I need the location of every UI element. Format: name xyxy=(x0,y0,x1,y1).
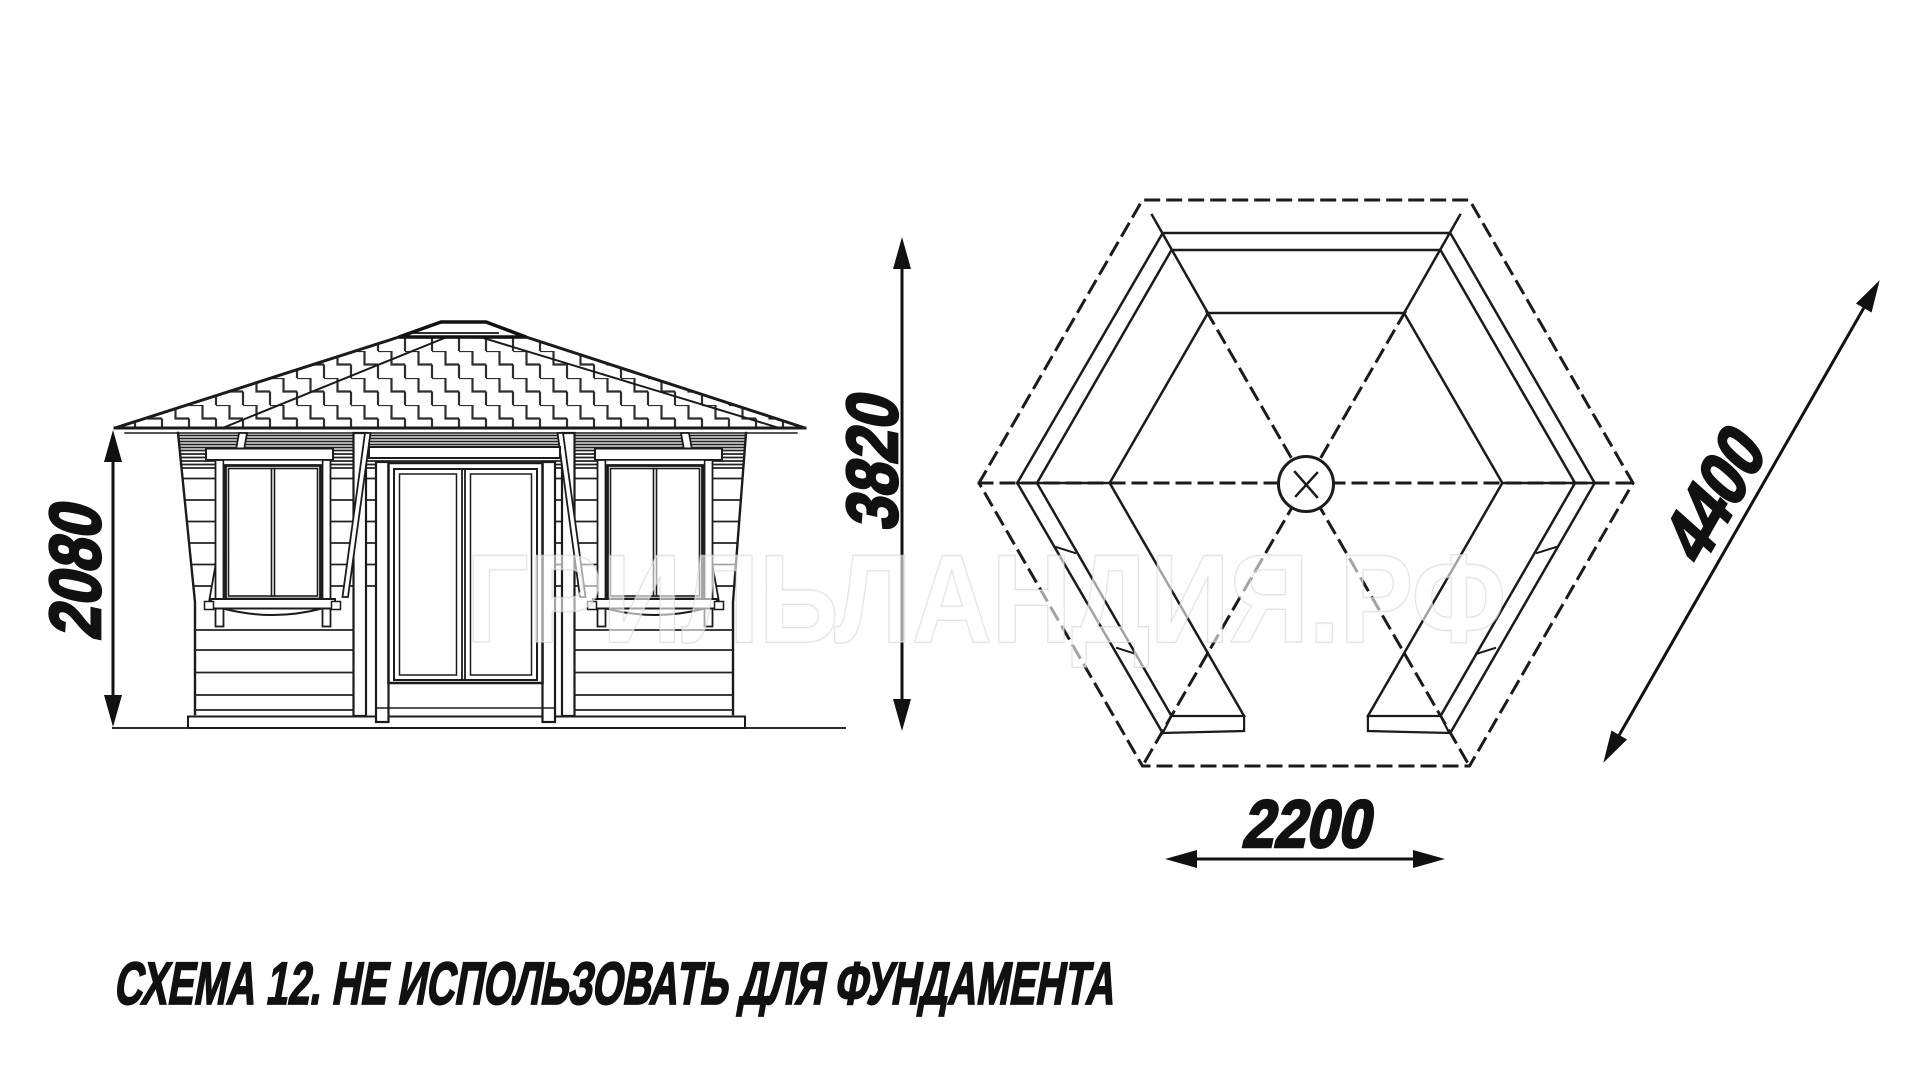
svg-text:2200: 2200 xyxy=(1238,788,1382,862)
svg-text:ГРИЛЬЛАНДИЯ.РФ: ГРИЛЬЛАНДИЯ.РФ xyxy=(466,530,1506,669)
svg-text:2080: 2080 xyxy=(36,493,116,644)
svg-text:3820: 3820 xyxy=(833,384,913,535)
svg-text:СХЕМА 12. НЕ ИСПОЛЬЗОВАТЬ ДЛЯ: СХЕМА 12. НЕ ИСПОЛЬЗОВАТЬ ДЛЯ ФУНДАМЕНТА xyxy=(111,949,1123,1016)
